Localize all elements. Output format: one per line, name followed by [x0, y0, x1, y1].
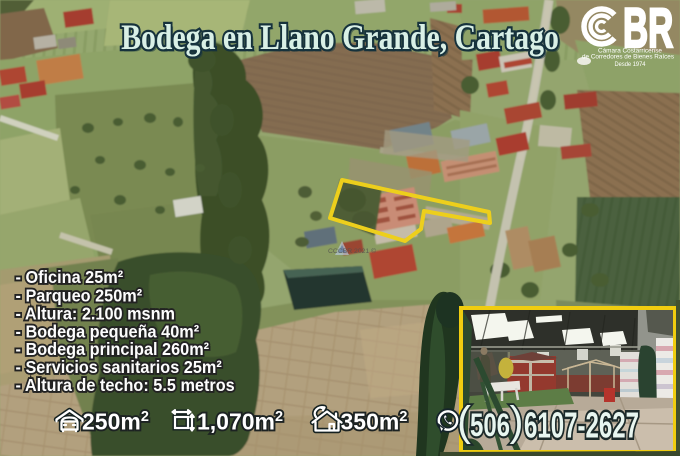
svg-text:de Corredores de Bienes Raíces: de Corredores de Bienes Raíces — [582, 54, 675, 61]
svg-text:- Altura de techo: 5.5 metros: - Altura de techo: 5.5 metros — [16, 374, 235, 395]
svg-text:6107-2627: 6107-2627 — [524, 406, 639, 446]
svg-text:Bodega en Llano Grande, Cartag: Bodega en Llano Grande, Cartago — [121, 19, 559, 58]
svg-text:350m2: 350m2 — [341, 409, 408, 435]
svg-text:Desde 1974: Desde 1974 — [615, 62, 647, 68]
svg-text:): ) — [510, 398, 524, 445]
svg-text:506: 506 — [470, 407, 510, 443]
svg-text:250m2: 250m2 — [82, 409, 149, 435]
svg-text:1,070m2: 1,070m2 — [197, 409, 283, 435]
